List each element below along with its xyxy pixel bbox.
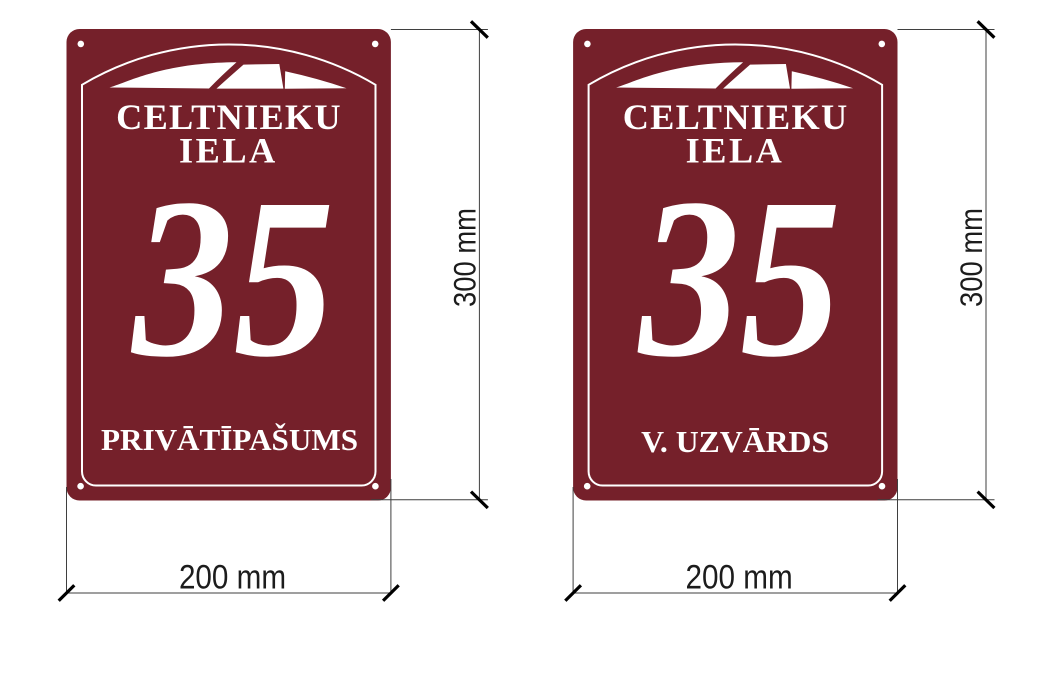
- svg-text:300 mm: 300 mm: [448, 208, 483, 307]
- svg-text:V. UZVĀRDS: V. UZVĀRDS: [641, 424, 829, 459]
- svg-text:PRIVĀTĪPAŠUMS: PRIVĀTĪPAŠUMS: [101, 423, 358, 457]
- svg-text:200 mm: 200 mm: [179, 558, 286, 597]
- svg-text:300 mm: 300 mm: [954, 208, 989, 307]
- svg-text:35: 35: [637, 152, 841, 405]
- svg-text:200 mm: 200 mm: [686, 558, 793, 597]
- svg-text:35: 35: [131, 152, 335, 405]
